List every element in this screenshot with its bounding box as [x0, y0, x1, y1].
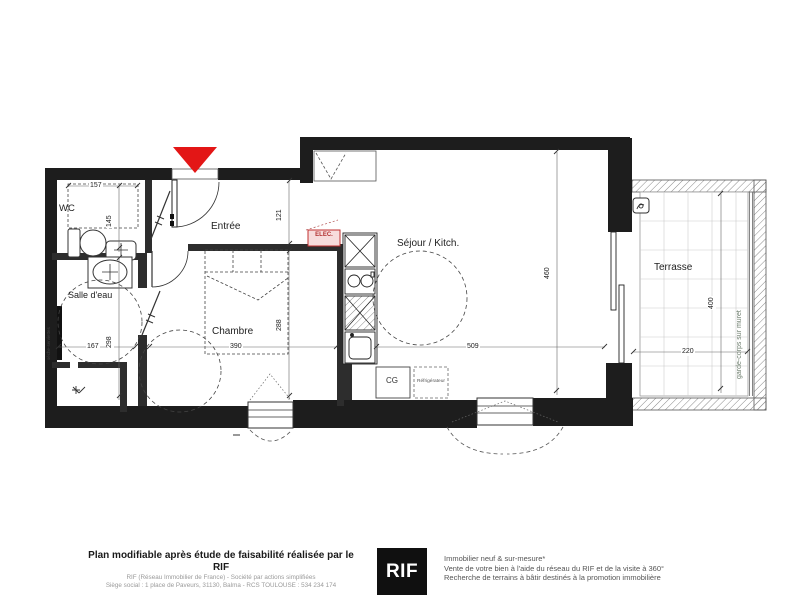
dim-wc-depth: 145	[106, 214, 114, 228]
elec-panel-label: ELEC.	[308, 232, 340, 238]
room-label-wc: WC	[59, 203, 75, 214]
floor-plan: WC Entrée Salle d'eau Chambre Séjour / K…	[0, 0, 800, 600]
room-label-sejour: Séjour / Kitch.	[397, 238, 459, 249]
dim-entree-depth: 121	[276, 208, 284, 222]
dim-sejour-width: 509	[466, 343, 480, 351]
room-label-chambre: Chambre	[212, 326, 253, 337]
footer-service-line-3: Recherche de terrains à bâtir destinés à…	[444, 573, 664, 583]
turning-circle	[139, 330, 221, 412]
towel-dryer-label: sèche-serviettes	[46, 327, 51, 360]
dim-salle-deau-depth: 298	[106, 335, 114, 349]
room-label-entree: Entrée	[211, 221, 240, 232]
sliding-bay-panel	[619, 285, 624, 363]
dim-sejour-depth: 460	[544, 266, 552, 280]
room-label-terrasse: Terrasse	[654, 262, 692, 273]
rif-logo-text: RIF	[386, 561, 418, 583]
footer-right-block: Immobilier neuf & sur-mesure* Vente de v…	[444, 554, 664, 583]
dim-salle-deau-width: 167	[86, 343, 100, 351]
dim-terrasse-depth: 400	[708, 296, 716, 310]
guardrail-label: garde-corps sur muret	[736, 310, 743, 379]
floor-plan-page: WC Entrée Salle d'eau Chambre Séjour / K…	[0, 0, 800, 600]
rif-logo: RIF	[377, 548, 427, 595]
dim-terrasse-width: 220	[681, 348, 695, 356]
footer-left-block: Plan modifiable après étude de faisabili…	[88, 550, 354, 589]
floor-plan-drawing	[0, 0, 800, 600]
toilet-bowl	[80, 230, 106, 256]
footer-service-line-1: Immobilier neuf & sur-mesure*	[444, 554, 664, 564]
footer-service-line-2: Vente de votre bien à l'aide du réseau d…	[444, 564, 664, 574]
dim-chambre-width: 390	[229, 343, 243, 351]
water-heater-label: CG	[386, 376, 398, 385]
bedroom-window	[248, 402, 293, 428]
living-window	[477, 398, 533, 425]
footer-company-line: RIF (Réseau Immobilier de France) - Soci…	[88, 574, 354, 582]
bed-outline	[205, 250, 288, 354]
closet-door-indication	[207, 276, 288, 300]
terrace-structure	[632, 180, 766, 410]
room-label-salle-deau: Salle d'eau	[68, 290, 112, 300]
sliding-bay-panel	[611, 232, 616, 310]
shower-drain	[72, 386, 85, 394]
fridge-label: Réfrigérateur	[414, 379, 448, 384]
dim-wc-width: 157	[89, 182, 103, 190]
toilet	[68, 229, 80, 257]
turning-circle	[373, 251, 467, 345]
footer-address-line: Siège social : 1 place de Paveurs, 31130…	[88, 582, 354, 590]
dim-chambre-depth: 288	[276, 318, 284, 332]
outdoor-tap-icon	[633, 198, 649, 213]
footer-title: Plan modifiable après étude de faisabili…	[88, 550, 354, 574]
